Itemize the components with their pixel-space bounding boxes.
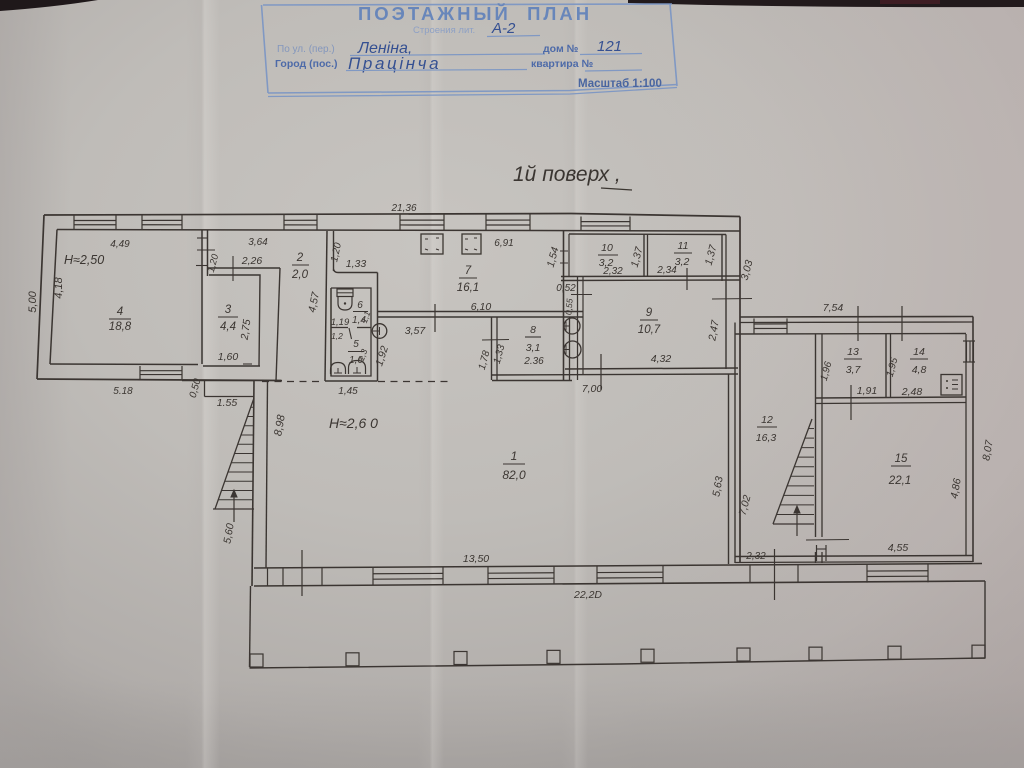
svg-text:7,00: 7,00 (582, 383, 603, 395)
svg-text:дом №: дом № (543, 43, 579, 55)
svg-text:14: 14 (913, 346, 925, 358)
svg-text:21,36: 21,36 (390, 203, 416, 214)
svg-text:5.18: 5.18 (113, 386, 133, 397)
svg-text:1,60: 1,60 (218, 351, 239, 363)
svg-text:4,55: 4,55 (888, 542, 909, 554)
svg-text:11: 11 (678, 240, 689, 252)
svg-text:10,7: 10,7 (638, 324, 661, 336)
svg-text:H≈2,50: H≈2,50 (64, 253, 104, 267)
svg-text:1,33: 1,33 (346, 258, 367, 270)
svg-text:13: 13 (847, 346, 859, 358)
svg-text:8: 8 (530, 324, 536, 336)
svg-text:2: 2 (296, 252, 304, 264)
svg-text:13,50: 13,50 (463, 553, 489, 565)
svg-text:2,26: 2,26 (241, 255, 263, 267)
svg-text:квартира №: квартира № (531, 58, 593, 70)
svg-text:1,2: 1,2 (331, 331, 343, 341)
svg-text:12: 12 (761, 414, 773, 426)
svg-text:7,54: 7,54 (823, 302, 844, 314)
svg-text:18,8: 18,8 (109, 321, 132, 333)
svg-text:4,18: 4,18 (53, 276, 65, 298)
svg-text:1,45: 1,45 (338, 386, 358, 397)
svg-text:3,1: 3,1 (526, 342, 541, 354)
svg-text:82,0: 82,0 (502, 468, 526, 482)
svg-text:А‑2: А‑2 (491, 20, 516, 37)
svg-text:4,49: 4,49 (110, 239, 130, 250)
svg-text:3,7: 3,7 (846, 364, 862, 376)
svg-text:6,91: 6,91 (494, 238, 513, 249)
svg-text:5,00: 5,00 (27, 290, 39, 312)
svg-text:1.55: 1.55 (217, 397, 238, 409)
svg-text:1: 1 (511, 449, 518, 463)
svg-text:0,55: 0,55 (563, 298, 574, 316)
svg-text:7: 7 (465, 265, 472, 277)
svg-text:1,91: 1,91 (857, 385, 877, 397)
svg-text:1й поверх ,: 1й поверх , (513, 163, 621, 186)
svg-text:9: 9 (646, 307, 653, 319)
svg-text:4,4: 4,4 (220, 321, 236, 333)
svg-text:5: 5 (353, 339, 359, 350)
svg-text:16,1: 16,1 (457, 282, 479, 294)
svg-text:2.36: 2.36 (523, 356, 544, 367)
svg-text:2,34: 2,34 (656, 265, 677, 276)
svg-text:4,8: 4,8 (912, 364, 927, 376)
svg-text:6,10: 6,10 (471, 301, 492, 313)
svg-text:ПОЭТАЖНЫЙ ПЛАН: ПОЭТАЖНЫЙ ПЛАН (358, 3, 592, 24)
svg-text:15: 15 (895, 453, 908, 465)
svg-text:4,32: 4,32 (651, 353, 672, 365)
svg-text:По ул. (пер.): По ул. (пер.) (277, 44, 335, 55)
svg-text:3,57: 3,57 (405, 325, 427, 337)
svg-text:0,52: 0,52 (556, 283, 576, 294)
svg-text:3,64: 3,64 (248, 237, 268, 248)
svg-text:1,19: 1,19 (331, 317, 350, 328)
svg-text:Город (пос.): Город (пос.) (275, 58, 337, 70)
svg-text:Масштаб 1:100: Масштаб 1:100 (578, 78, 662, 90)
svg-text:3,2: 3,2 (675, 256, 690, 268)
svg-text:10: 10 (601, 242, 613, 254)
svg-text:2,48: 2,48 (901, 386, 923, 398)
svg-text:Строения лит.: Строения лит. (413, 25, 475, 36)
svg-text:2,0: 2,0 (291, 269, 309, 281)
svg-text:22,1: 22,1 (888, 475, 911, 487)
svg-text:4: 4 (117, 306, 123, 318)
svg-text:6: 6 (357, 300, 363, 311)
svg-text:2,32: 2,32 (602, 266, 623, 277)
svg-text:121: 121 (597, 38, 622, 55)
svg-text:16,3: 16,3 (756, 432, 777, 444)
svg-text:3: 3 (225, 304, 232, 316)
svg-text:22,2D: 22,2D (573, 589, 602, 601)
svg-text:H≈2,6 0: H≈2,6 0 (329, 415, 378, 431)
